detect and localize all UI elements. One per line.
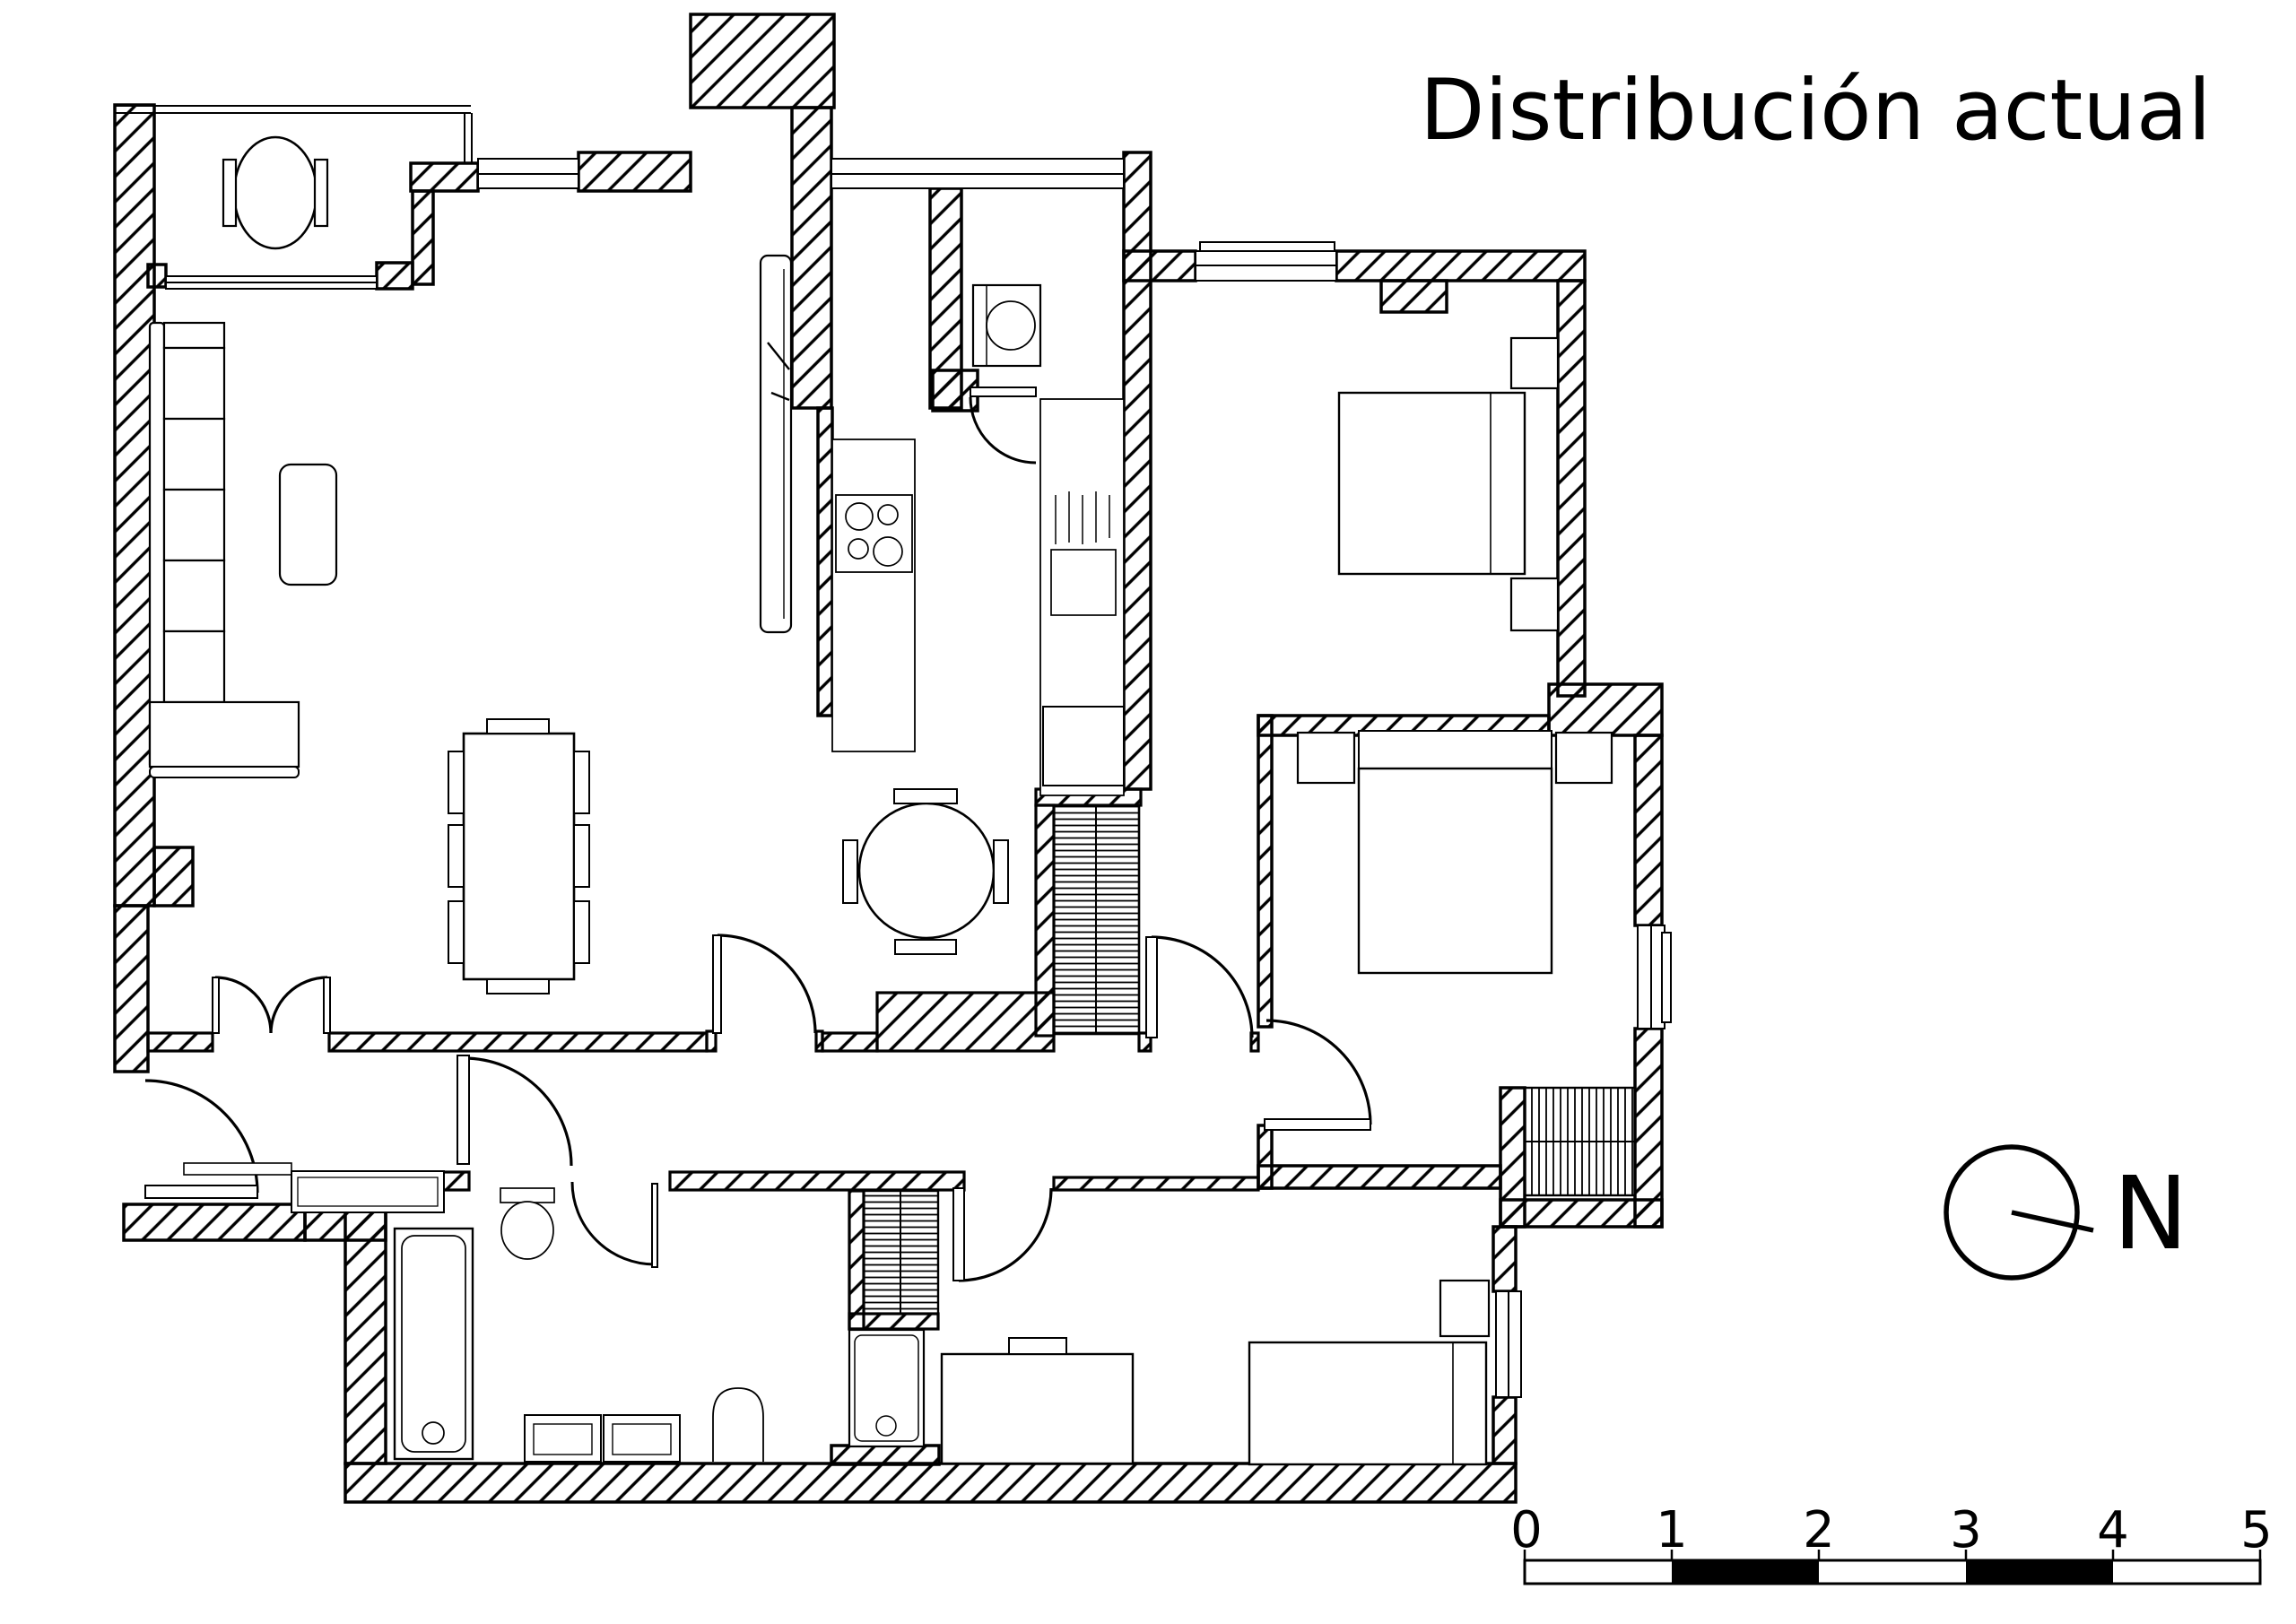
wall-right-bedroom2-lower — [1635, 1029, 1662, 1227]
wall-left-upper — [115, 105, 154, 906]
wall-bedroom2-left-upper — [1258, 716, 1272, 1027]
scale-segment-black-2 — [1966, 1560, 2113, 1584]
floor-plan-drawing: Distribución actual N 0 1 2 3 4 5 — [0, 0, 2296, 1624]
bedroom2-wardrobe — [1525, 1088, 1635, 1195]
dining-chair-right — [574, 825, 589, 887]
dining-chair-left — [448, 825, 464, 887]
kitchen-chair-left — [843, 840, 857, 903]
scale-label-0: 0 — [1510, 1501, 1543, 1559]
room3-chest — [942, 1354, 1133, 1463]
wall-closet-left — [849, 1191, 864, 1329]
room3-window — [1496, 1291, 1521, 1397]
kitchen-chair-bottom — [895, 940, 956, 954]
wall-top-chunk — [691, 14, 834, 108]
cooktop — [836, 495, 912, 572]
room3-nightstand — [1440, 1281, 1489, 1336]
dining-table — [464, 734, 574, 979]
terrace-window-jamb-left — [148, 265, 166, 287]
wall-bedroom1-top-left — [1124, 251, 1196, 281]
sink-right — [604, 1415, 680, 1462]
room3-single-bed — [1249, 1342, 1486, 1464]
sofa-cushion — [164, 560, 224, 631]
kitchen-sink — [1051, 550, 1116, 615]
terrace-window-jamb-right — [377, 263, 413, 289]
bedroom1-nightstand-bottom — [1511, 578, 1558, 630]
hall-shelf — [184, 1163, 291, 1175]
wall-wardrobe1-left — [1036, 805, 1054, 1036]
wall-hall-top-a — [148, 1033, 213, 1051]
sofa-cushion — [164, 419, 224, 490]
kitchen-chair-right — [994, 840, 1008, 903]
scale-label-5: 5 — [2240, 1501, 2273, 1559]
wall-bath-top-b — [670, 1172, 964, 1190]
sofa-front-edge — [150, 767, 299, 777]
laundry-furniture — [973, 285, 1040, 366]
dining-chair-top — [487, 719, 549, 734]
bedroom1-window — [1196, 242, 1336, 281]
wall-bottom-step — [831, 1446, 939, 1464]
bedroom2-bed — [1359, 769, 1552, 973]
toilet — [500, 1188, 554, 1259]
terrace-chair-left — [223, 160, 236, 226]
fridge — [1043, 707, 1124, 786]
wall-bottom-right-wing — [1500, 1200, 1662, 1227]
wall-kitchen-left — [818, 408, 832, 716]
wall-bedroom2-bottom — [1258, 1166, 1500, 1188]
wall-living-laundry — [792, 108, 831, 408]
sofa-corner-seat — [150, 702, 299, 767]
bedroom2-nightstand-left — [1298, 733, 1354, 783]
dining-chair-right — [574, 751, 589, 813]
bath-closet — [864, 1191, 938, 1314]
wall-closet-bottom — [849, 1314, 938, 1329]
terrace-round-table — [234, 137, 317, 248]
shower — [849, 1330, 924, 1446]
dining-chair-bottom — [487, 979, 549, 994]
washing-machine — [973, 285, 1040, 366]
hall-wardrobe — [1054, 805, 1139, 1034]
dining-set — [448, 719, 589, 994]
wall-hall-top-b — [329, 1033, 707, 1051]
wall-left-lower — [115, 906, 148, 1072]
kitchen-counter-left — [832, 439, 915, 751]
wall-bottom — [345, 1463, 1516, 1502]
scale-bar-body — [1525, 1560, 2260, 1584]
scale-segment-black-1 — [1672, 1560, 1819, 1584]
wall-top-living — [578, 152, 691, 191]
wall-entry-bottom — [124, 1204, 305, 1240]
sofa-cushion — [164, 348, 224, 419]
dining-chair-left — [448, 751, 464, 813]
wall-hall-step — [877, 993, 1054, 1051]
bidet — [713, 1388, 763, 1462]
kitchen-chair-top — [894, 789, 957, 803]
terrace-wall-vertical — [413, 191, 433, 284]
dining-chair-left — [448, 901, 464, 963]
bedroom1-nightstand-top — [1511, 338, 1558, 388]
wall-right-step — [1549, 684, 1662, 735]
laundry-window — [831, 159, 1124, 188]
wall-room3-right-lower — [1493, 1397, 1516, 1463]
wall-bedroom1-top-right — [1336, 251, 1585, 281]
bathtub — [395, 1229, 473, 1459]
wall-bedroom1-pillar — [1381, 281, 1447, 312]
kitchen-round-table — [859, 803, 994, 938]
page-title: Distribución actual — [1420, 62, 2212, 160]
floor-plan-sheet: Distribución actual N 0 1 2 3 4 5 — [0, 0, 2296, 1624]
jamb-kitchen-door-left — [707, 1031, 716, 1051]
sofa-cushion — [164, 490, 224, 560]
wall-room3-top — [1054, 1177, 1258, 1190]
bedroom2-nightstand-right — [1556, 733, 1612, 783]
compass-north-label: N — [2113, 1156, 2188, 1272]
bedroom2-window — [1638, 925, 1671, 1029]
sofa-armrest — [164, 323, 224, 348]
bedroom1-bed — [1339, 393, 1525, 574]
wall-right-bedroom1 — [1558, 281, 1585, 696]
bedroom2-headboard — [1359, 731, 1552, 769]
wall-room3-right-upper — [1493, 1227, 1516, 1291]
sink-left — [525, 1415, 601, 1462]
kitchen-counter-right — [1040, 399, 1124, 795]
living-top-window — [478, 159, 578, 188]
wall-kitchen-right — [1124, 152, 1151, 789]
living-terrace-window — [166, 276, 377, 289]
wall-left-jog — [154, 847, 193, 906]
terrace-wall-horizontal — [411, 163, 478, 191]
dining-chair-right — [574, 901, 589, 963]
sofa-cushion — [164, 631, 224, 702]
room3-chest-box — [1009, 1338, 1066, 1354]
wall-hall-top-c — [822, 1033, 877, 1051]
terrace-chair-right — [315, 160, 327, 226]
wall-right-bedroom2-upper — [1635, 735, 1662, 925]
side-table — [280, 465, 336, 585]
tv-unit — [761, 256, 791, 632]
